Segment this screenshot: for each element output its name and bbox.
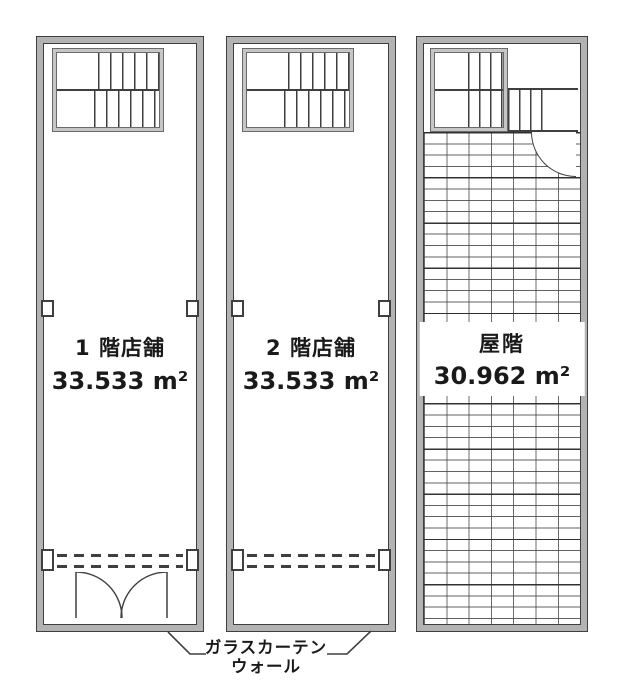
staircase-treads — [56, 52, 160, 128]
unit-1f-label: 1 階店舗 33.533 m² — [44, 332, 196, 395]
curtain-wall-end-cap-left — [41, 549, 54, 571]
unit-2f-label: 2 階店舗 33.533 m² — [234, 332, 388, 395]
stair-landing-divider — [435, 89, 503, 91]
staircase-treads — [434, 52, 504, 128]
double-entry-door — [44, 572, 196, 622]
wall-opening-right — [186, 300, 199, 317]
floor-plan-unit-1f: 1 階店舗 33.533 m² — [36, 36, 204, 632]
stair-treads-upper — [468, 53, 503, 90]
stair-treads-extension — [508, 90, 546, 130]
stair-treads-lower — [284, 90, 349, 127]
unit-1f-name: 1 階店舗 — [44, 332, 196, 362]
staircase-1f — [52, 48, 164, 132]
stair-landing-divider — [247, 89, 349, 91]
callout-line-2: ウォール — [191, 657, 341, 676]
unit-1f-area: 33.533 m² — [44, 367, 196, 395]
unit-roof-name: 屋階 — [434, 328, 571, 358]
callout-line-1: ガラスカーテン — [191, 638, 341, 657]
unit-roof-area: 30.962 m² — [434, 362, 571, 390]
stair-run-extension — [508, 90, 578, 132]
stair-treads-lower — [94, 90, 159, 127]
unit-roof-interior: 屋階 30.962 m² — [423, 43, 581, 625]
stair-treads-lower — [468, 90, 503, 127]
unit-2f-interior: 2 階店舗 33.533 m² — [233, 43, 389, 625]
wall-opening-left — [41, 300, 54, 317]
unit-2f-name: 2 階店舗 — [234, 332, 388, 362]
unit-2f-area: 33.533 m² — [234, 367, 388, 395]
floor-plan-unit-roof: 屋階 30.962 m² — [416, 36, 588, 632]
curtain-wall-dashed-line — [247, 565, 375, 568]
floor-plan-canvas: 1 階店舗 33.533 m² — [0, 0, 628, 683]
floor-plan-unit-2f: 2 階店舗 33.533 m² — [226, 36, 396, 632]
stair-landing-divider — [57, 89, 159, 91]
staircase-roof — [430, 48, 508, 132]
curtain-wall-end-cap-right — [378, 549, 391, 571]
staircase-treads — [246, 52, 350, 128]
curtain-wall-end-cap-left — [231, 549, 244, 571]
curtain-wall-dashed-line — [57, 565, 183, 568]
wall-opening-left — [231, 300, 244, 317]
stair-treads-upper — [98, 53, 159, 90]
glass-curtain-wall-callout: ガラスカーテン ウォール — [191, 638, 341, 676]
curtain-wall-dashed-line — [247, 554, 375, 557]
curtain-wall-dashed-line — [57, 554, 183, 557]
wall-opening-right — [378, 300, 391, 317]
staircase-2f — [242, 48, 354, 132]
stair-treads-upper — [288, 53, 349, 90]
unit-1f-interior: 1 階店舗 33.533 m² — [43, 43, 197, 625]
unit-roof-label: 屋階 30.962 m² — [420, 322, 585, 396]
curtain-wall-end-cap-right — [186, 549, 199, 571]
